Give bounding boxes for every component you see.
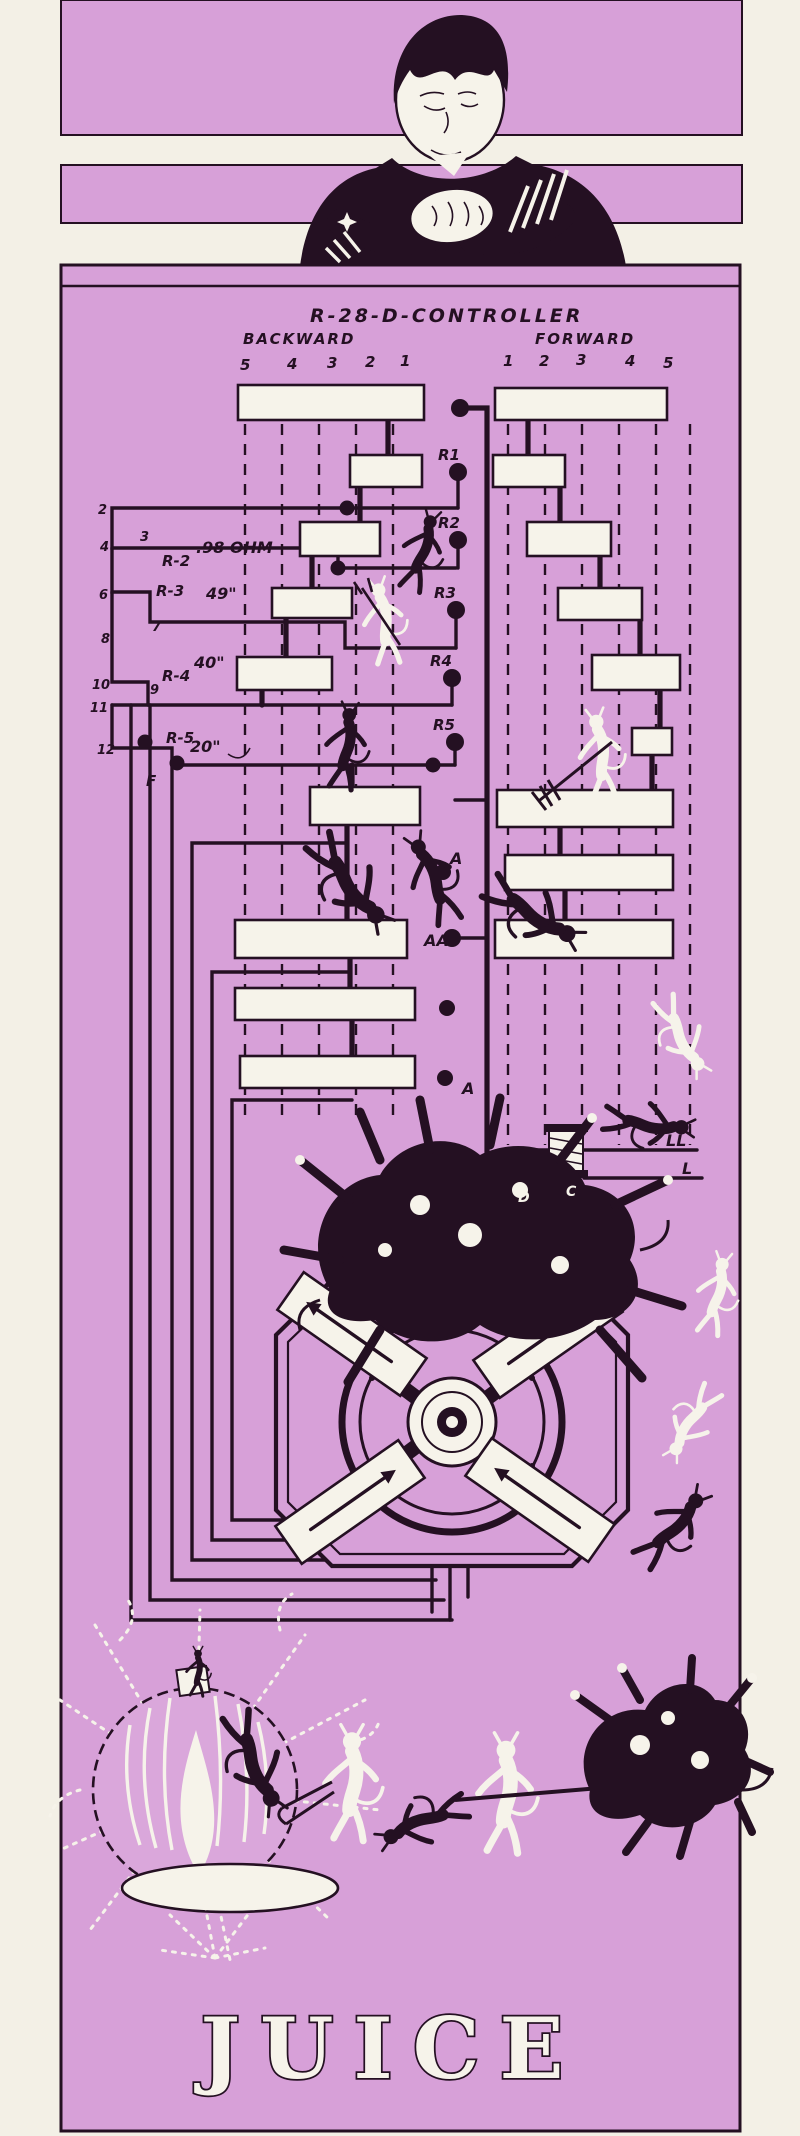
feeder-label: F xyxy=(146,772,157,790)
tap-r1: R1 xyxy=(438,446,460,464)
tap-r3: R3 xyxy=(434,584,456,602)
pos-b2: 2 xyxy=(365,353,375,371)
resistor-r2-value: .98 OHM xyxy=(196,538,273,557)
tap-r2: R2 xyxy=(438,514,460,532)
resistor-r5-value: 20" xyxy=(190,737,221,756)
terminal-9: 9 xyxy=(150,683,159,698)
caption-juice: JUICE xyxy=(193,1999,583,2098)
pos-f1: 1 xyxy=(503,352,513,370)
pos-f2: 2 xyxy=(539,352,549,370)
imp-letter-c: C xyxy=(566,1184,577,1200)
forward-label: FORWARD xyxy=(535,330,635,348)
juice-cartoon-illustration: R-28-D-CONTROLLER BACKWARD FORWARD 5 4 3… xyxy=(0,0,800,2136)
terminal-4: 4 xyxy=(99,540,109,555)
resistor-r3-value: 49" xyxy=(205,584,237,603)
pos-b1: 1 xyxy=(400,352,410,370)
point-a-lower: A xyxy=(460,1079,474,1098)
backward-label: BACKWARD xyxy=(243,330,355,348)
pos-b4: 4 xyxy=(286,355,297,373)
illustration-canvas: R-28-D-CONTROLLER BACKWARD FORWARD 5 4 3… xyxy=(0,0,800,2136)
terminal-10: 10 xyxy=(92,678,110,693)
resistor-r4: R-4 xyxy=(162,667,190,685)
terminal-8: 8 xyxy=(101,632,110,647)
resistor-r4-value: 40" xyxy=(193,653,225,672)
pos-f4: 4 xyxy=(624,352,635,370)
terminal-12: 12 xyxy=(97,743,115,758)
lamp-saucer xyxy=(122,1864,338,1912)
resistor-r3: R-3 xyxy=(156,582,184,600)
pos-f3: 3 xyxy=(576,351,586,369)
terminal-3: 3 xyxy=(140,530,149,545)
tap-r5: R5 xyxy=(433,716,455,734)
pos-b5: 5 xyxy=(240,356,250,374)
tap-r4: R4 xyxy=(430,652,452,670)
terminal-7: 7 xyxy=(152,620,162,635)
pos-b3: 3 xyxy=(327,354,337,372)
terminal-2: 2 xyxy=(98,503,107,518)
terminal-11: 11 xyxy=(90,701,108,716)
schematic-title: R-28-D-CONTROLLER xyxy=(310,305,583,327)
inductor-l: L xyxy=(682,1159,692,1178)
imp-letter-d: D xyxy=(518,1190,530,1206)
point-aa: AA xyxy=(422,931,449,950)
terminal-6: 6 xyxy=(99,588,108,603)
pos-f5: 5 xyxy=(663,354,673,372)
resistor-r2: R-2 xyxy=(162,552,190,570)
